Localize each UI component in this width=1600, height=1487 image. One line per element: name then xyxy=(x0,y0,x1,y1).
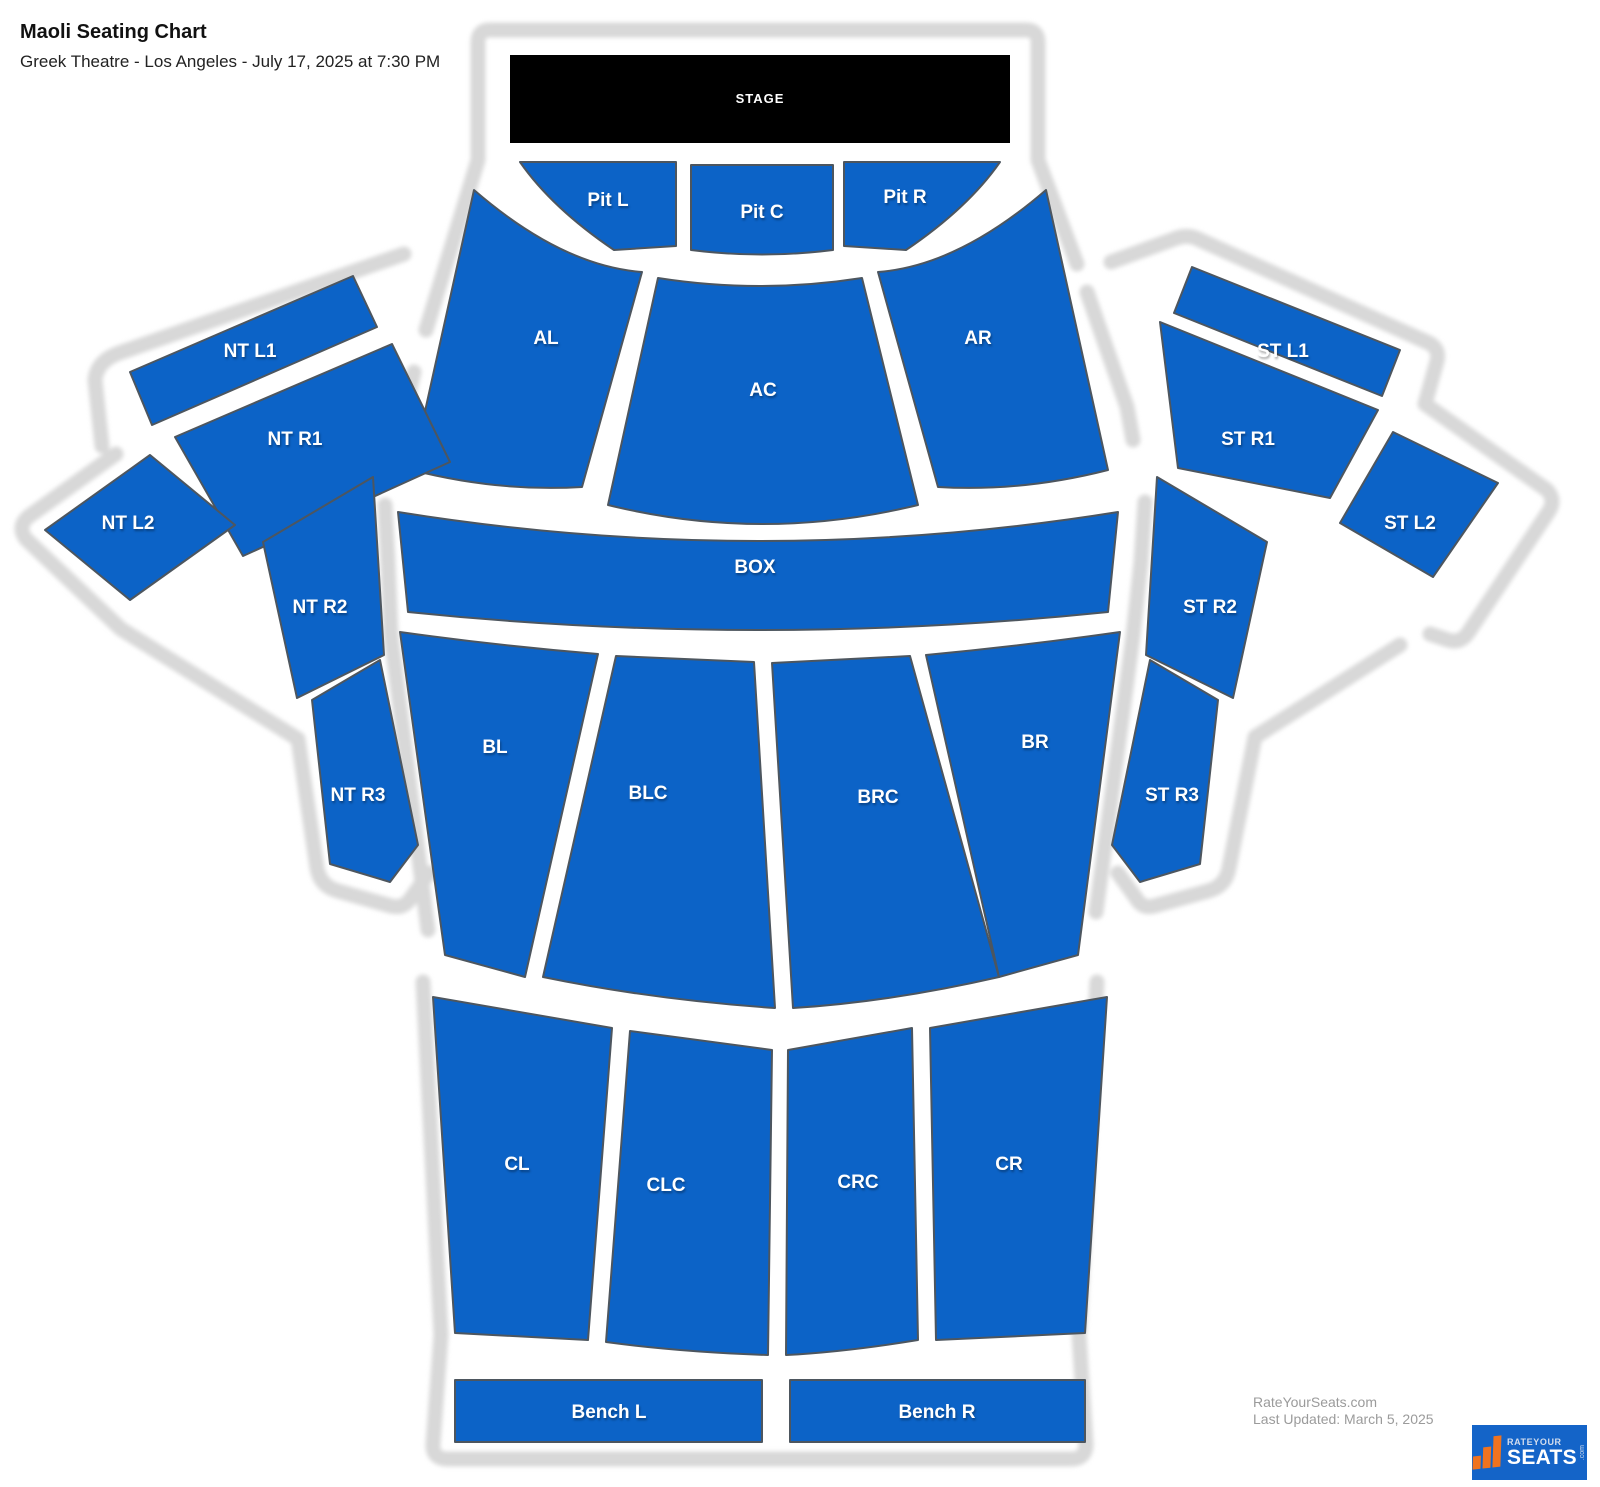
label-st-r2: ST R2 xyxy=(1183,597,1237,618)
footer-credit: RateYourSeats.com Last Updated: March 5,… xyxy=(1253,1394,1434,1428)
label-br: BR xyxy=(1021,732,1049,753)
label-bl: BL xyxy=(482,737,508,758)
label-blc: BLC xyxy=(628,783,667,804)
label-st-r3: ST R3 xyxy=(1145,785,1199,806)
label-crc: CRC xyxy=(837,1172,878,1193)
label-ar: AR xyxy=(964,328,992,349)
label-pit-l: Pit L xyxy=(587,190,629,211)
label-brc: BRC xyxy=(857,787,898,808)
label-ac: AC xyxy=(749,380,777,401)
label-cl: CL xyxy=(504,1154,530,1175)
section-st-l2[interactable] xyxy=(1340,432,1498,577)
bar-chart-icon xyxy=(1473,1435,1502,1469)
footer-updated: Last Updated: March 5, 2025 xyxy=(1253,1411,1434,1428)
label-st-l1: ST L1 xyxy=(1257,341,1309,362)
label-bench-l: Bench L xyxy=(572,1402,647,1423)
label-nt-r1: NT R1 xyxy=(268,429,323,450)
seating-map: STAGE Pit L Pit C Pit R AL AC AR BOX NT … xyxy=(0,0,1600,1487)
chart-header: Maoli Seating Chart Greek Theatre - Los … xyxy=(20,20,440,72)
label-st-l2: ST L2 xyxy=(1384,513,1436,534)
label-pit-c: Pit C xyxy=(740,202,784,223)
label-box: BOX xyxy=(734,557,776,578)
label-clc: CLC xyxy=(646,1175,685,1196)
section-st-r2[interactable] xyxy=(1146,477,1267,698)
label-pit-r: Pit R xyxy=(883,187,927,208)
rateyourseats-logo[interactable]: RATEYOUR SEATS .com xyxy=(1472,1425,1587,1480)
label-nt-r3: NT R3 xyxy=(331,785,386,806)
label-al: AL xyxy=(533,328,559,349)
label-nt-l2: NT L2 xyxy=(102,513,155,534)
label-bench-r: Bench R xyxy=(898,1402,975,1423)
label-cr: CR xyxy=(995,1154,1023,1175)
logo-com-suffix: .com xyxy=(1579,1445,1586,1460)
page-title: Maoli Seating Chart xyxy=(20,20,440,44)
logo-line2: SEATS xyxy=(1507,1447,1577,1468)
label-nt-l1: NT L1 xyxy=(224,341,277,362)
label-st-r1: ST R1 xyxy=(1221,429,1275,450)
section-ac[interactable] xyxy=(608,278,918,524)
stage-label: STAGE xyxy=(736,91,785,106)
page-subtitle: Greek Theatre - Los Angeles - July 17, 2… xyxy=(20,52,440,72)
label-nt-r2: NT R2 xyxy=(293,597,348,618)
section-clc[interactable] xyxy=(606,1031,772,1355)
footer-site: RateYourSeats.com xyxy=(1253,1394,1434,1411)
